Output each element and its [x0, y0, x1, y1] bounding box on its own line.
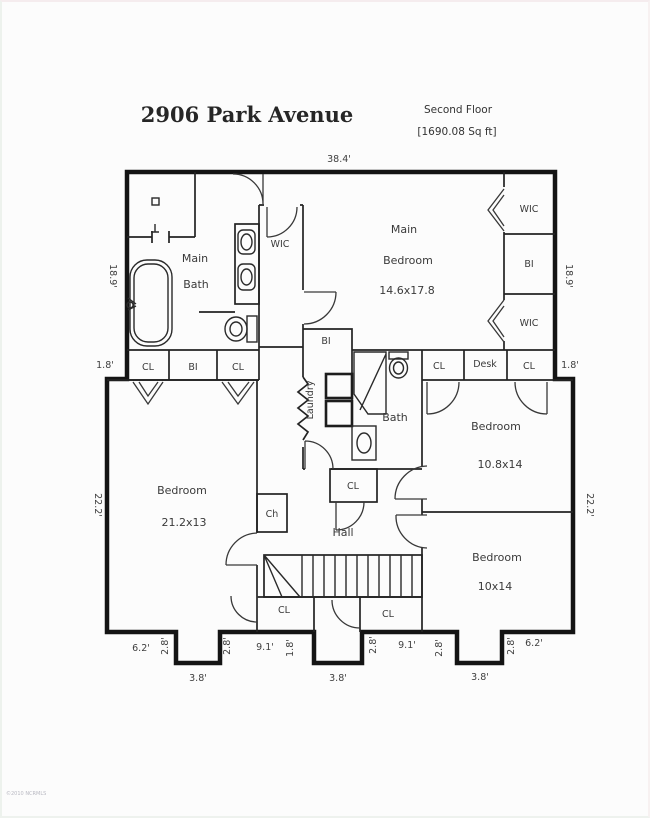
dim-right-lower: 22.2'	[584, 493, 595, 517]
staircase	[264, 555, 422, 597]
dim-bottom-1: 2.8'	[160, 637, 171, 655]
dim-left-upper: 18.9'	[107, 264, 118, 288]
dim-bottom-4: 9.1'	[256, 642, 274, 653]
label-hall: Hall	[332, 526, 353, 539]
door-wic-center	[267, 207, 297, 237]
bifold-cl-left-1	[133, 382, 163, 404]
dim-bottom-8: 9.1'	[398, 640, 416, 651]
toilet-main-bath	[225, 316, 257, 342]
door-cl-bottom-right	[332, 600, 360, 628]
door-bath-lower	[305, 441, 333, 469]
shower-stall-bath	[354, 352, 386, 414]
label-bi-left: BI	[188, 362, 197, 373]
dim-bottom-6: 3.8'	[329, 673, 347, 684]
dim-top: 38.4'	[327, 154, 351, 165]
dim-right-jog: 1.8'	[561, 360, 579, 371]
label-bath: Bath	[382, 411, 408, 424]
label-main-bedroom-dims: 14.6x17.8	[379, 284, 435, 297]
label-cl-right-2: CL	[523, 361, 536, 372]
label-cl-mid: CL	[347, 481, 360, 492]
label-main-bath-2: Bath	[183, 278, 209, 291]
door-bedroom-right-bottom	[396, 515, 427, 548]
dim-bottom-2: 3.8'	[189, 673, 207, 684]
label-main-bath-1: Main	[182, 252, 208, 265]
toilet-bath	[389, 352, 408, 378]
dim-left-jog: 1.8'	[96, 360, 114, 371]
floorplan-drawing: 2906 Park Avenue Second Floor [1690.08 S…	[2, 2, 648, 816]
door-main-bedroom	[304, 292, 336, 324]
label-bedroom-left-dims: 21.2x13	[162, 516, 207, 529]
label-wic-center: WIC	[271, 239, 290, 250]
label-cl-bottom-right: CL	[382, 609, 395, 620]
sink-bath	[352, 426, 376, 460]
dim-bottom-7: 2.8'	[368, 636, 379, 654]
label-main-bedroom-2: Bedroom	[383, 254, 433, 267]
dim-bottom-0: 6.2'	[132, 643, 150, 654]
label-cl-bottom-left: CL	[278, 605, 291, 616]
floor-label: Second Floor	[424, 104, 493, 116]
bifold-wic-right-bottom	[488, 300, 504, 342]
dim-bottom-11: 2.8'	[506, 637, 517, 655]
label-laundry: Laundry	[305, 380, 316, 419]
dim-bottom-10: 3.8'	[471, 672, 489, 683]
label-bi-right: BI	[524, 259, 533, 270]
dim-bottom-9: 2.8'	[434, 639, 445, 657]
door-cl-band-right-1	[427, 382, 459, 414]
label-bedroom-rt: Bedroom	[471, 420, 521, 433]
shower-corner	[151, 198, 159, 232]
label-cl-right-1: CL	[433, 361, 446, 372]
label-bedroom-left: Bedroom	[157, 484, 207, 497]
label-cl-left-1: CL	[142, 362, 155, 373]
door-bedroom-right-top	[395, 466, 427, 499]
label-wic-right-bottom: WIC	[520, 318, 539, 329]
label-wic-right-top: WIC	[520, 204, 539, 215]
label-bedroom-rt-dims: 10.8x14	[478, 458, 523, 471]
dim-bottom-3: 2.8'	[222, 637, 233, 655]
room-labels: Main Bath WIC Main Bedroom 14.6x17.8 WIC…	[142, 204, 539, 620]
label-main-bedroom-1: Main	[391, 223, 417, 236]
dim-left-lower: 22.2'	[92, 493, 103, 517]
label-cl-left-2: CL	[232, 362, 245, 373]
door-bath-entry	[233, 174, 263, 204]
bifold-wic-right-top	[488, 189, 504, 231]
label-bedroom-rb-dims: 10x14	[478, 580, 513, 593]
door-bedroom-left	[226, 533, 257, 565]
label-chase: Ch	[266, 509, 279, 520]
label-bedroom-rb: Bedroom	[472, 551, 522, 564]
door-cl-bottom-left	[231, 596, 257, 622]
washer-dryer	[326, 374, 352, 426]
dim-bottom-5: 1.8'	[285, 639, 296, 657]
dim-right-upper: 18.9'	[563, 264, 574, 288]
vanity-sinks	[238, 230, 255, 290]
floorplan-page: 2906 Park Avenue Second Floor [1690.08 S…	[0, 0, 650, 818]
area-label: [1690.08 Sq ft]	[417, 126, 496, 138]
label-desk: Desk	[473, 359, 497, 370]
bifold-cl-left-2	[222, 382, 254, 404]
bathtub	[127, 260, 172, 346]
label-bi-center: BI	[321, 336, 330, 347]
dim-bottom-12: 6.2'	[525, 638, 543, 649]
door-cl-band-right-2	[515, 382, 547, 414]
mls-watermark: ©2010 NCRMLS	[6, 790, 46, 797]
page-title: 2906 Park Avenue	[141, 102, 353, 127]
